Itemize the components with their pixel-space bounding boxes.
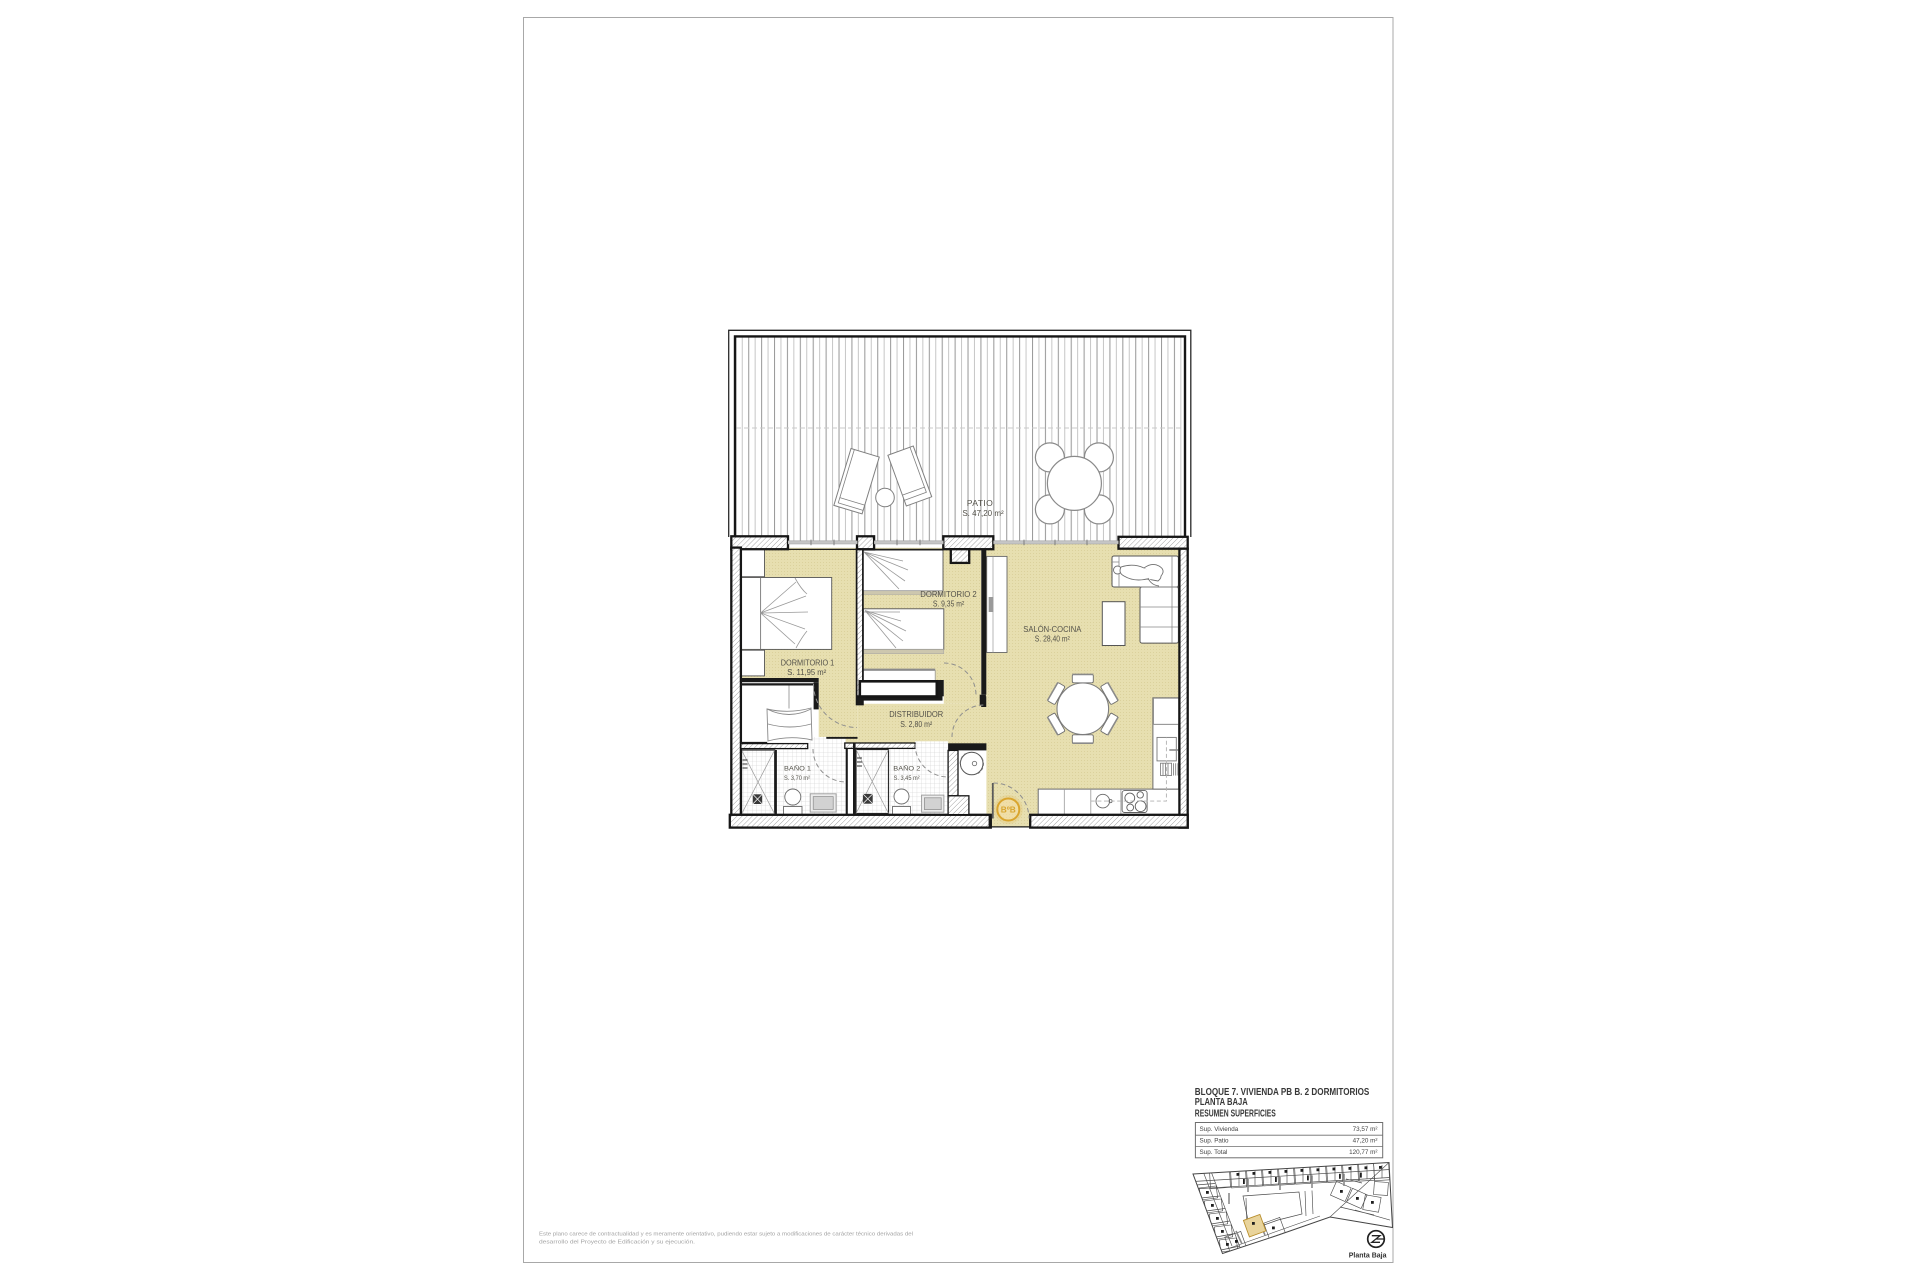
svg-text:SALÓN-COCINA: SALÓN-COCINA	[1023, 624, 1081, 634]
svg-text:BºB: BºB	[1001, 805, 1016, 815]
svg-text:DORMITORIO 2: DORMITORIO 2	[920, 589, 977, 599]
svg-text:47,20 m²: 47,20 m²	[1353, 1138, 1378, 1145]
svg-text:desarrollo del Proyecto de Edi: desarrollo del Proyecto de Edificación y…	[539, 1239, 695, 1245]
svg-text:BAÑO 2: BAÑO 2	[893, 764, 920, 773]
svg-text:S. 11,95 m²: S. 11,95 m²	[787, 668, 826, 677]
svg-text:S. 9,35 m²: S. 9,35 m²	[933, 599, 965, 608]
svg-text:Sup. Patio: Sup. Patio	[1200, 1138, 1230, 1145]
svg-text:BAÑO 1: BAÑO 1	[784, 764, 811, 773]
svg-text:S. 28,40 m²: S. 28,40 m²	[1035, 635, 1070, 644]
svg-text:S. 3,45 m²: S. 3,45 m²	[894, 775, 920, 782]
svg-text:Este plano carece de contractu: Este plano carece de contractualidad y e…	[539, 1232, 913, 1238]
svg-text:Sup. Total: Sup. Total	[1200, 1149, 1228, 1156]
svg-text:PATIO: PATIO	[967, 498, 994, 508]
svg-text:Planta Baja: Planta Baja	[1349, 1253, 1387, 1260]
svg-text:120,77 m²: 120,77 m²	[1349, 1149, 1377, 1156]
svg-text:DORMITORIO 1: DORMITORIO 1	[781, 658, 835, 668]
svg-text:73,57 m²: 73,57 m²	[1353, 1126, 1378, 1133]
svg-text:DISTRIBUIDOR: DISTRIBUIDOR	[889, 710, 943, 719]
svg-text:S. 3,70 m²: S. 3,70 m²	[784, 775, 810, 782]
svg-text:S. 47,20 m²: S. 47,20 m²	[962, 509, 1004, 518]
svg-text:RESUMEN SUPERFICIES: RESUMEN SUPERFICIES	[1195, 1107, 1276, 1119]
svg-text:Sup. Vivienda: Sup. Vivienda	[1200, 1126, 1239, 1133]
svg-text:S. 2,80 m²: S. 2,80 m²	[900, 720, 932, 729]
svg-text:PLANTA BAJA: PLANTA BAJA	[1195, 1096, 1248, 1108]
